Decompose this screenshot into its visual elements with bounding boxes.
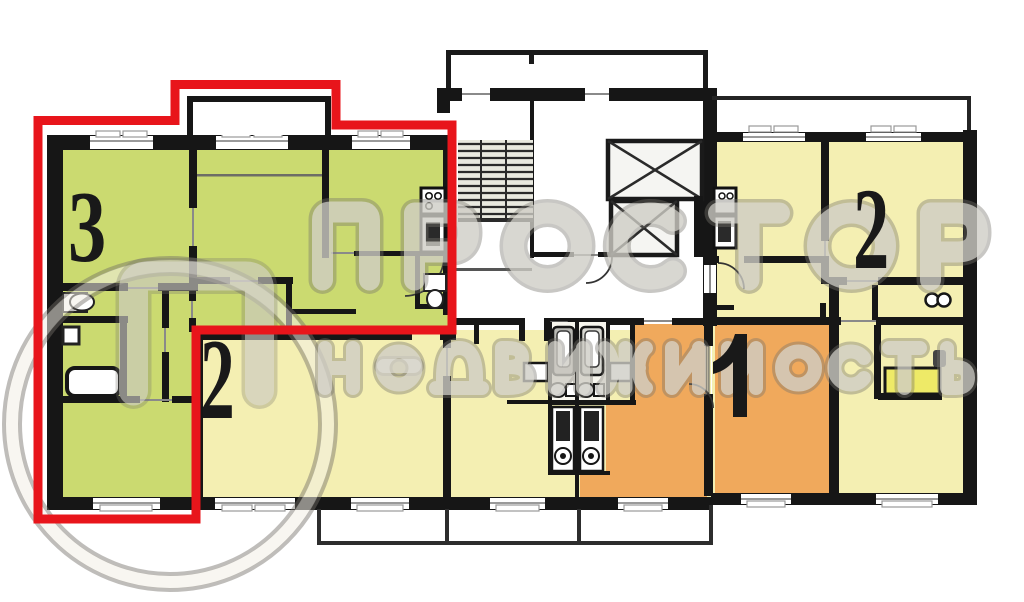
- svg-text:2: 2: [200, 315, 235, 444]
- svg-text:3: 3: [68, 170, 106, 283]
- svg-text:2: 2: [853, 165, 889, 295]
